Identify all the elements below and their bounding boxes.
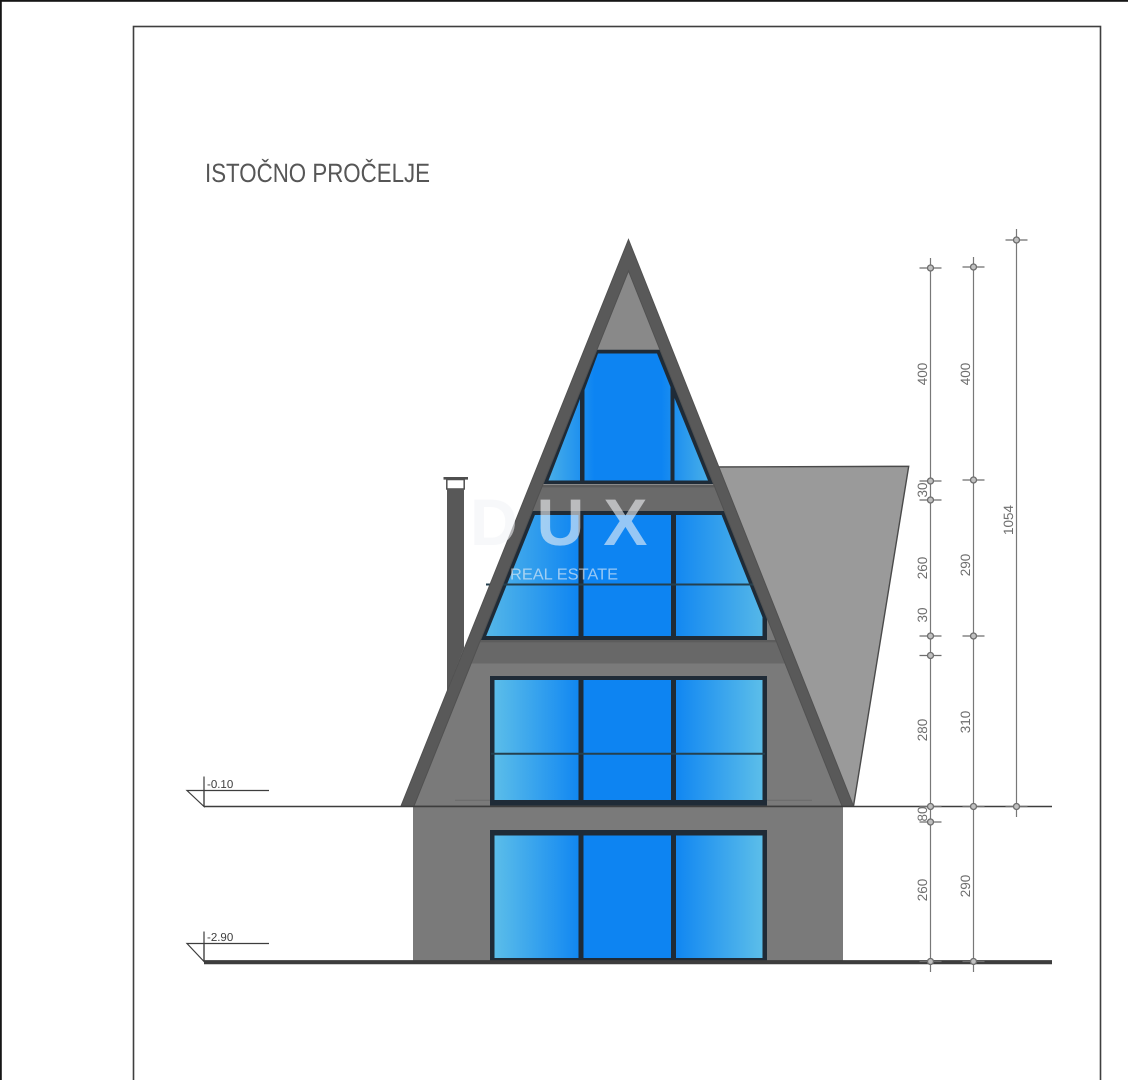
svg-text:80: 80 bbox=[915, 806, 930, 821]
svg-text:400: 400 bbox=[958, 363, 973, 386]
svg-text:-2.90: -2.90 bbox=[207, 932, 233, 944]
svg-text:1054: 1054 bbox=[1001, 504, 1016, 535]
svg-text:ISTOČNO PROČELJE: ISTOČNO PROČELJE bbox=[205, 158, 430, 188]
svg-text:290: 290 bbox=[958, 875, 973, 898]
svg-text:-0.10: -0.10 bbox=[207, 779, 233, 791]
svg-text:290: 290 bbox=[958, 554, 973, 577]
svg-text:30: 30 bbox=[915, 482, 930, 497]
svg-text:260: 260 bbox=[915, 879, 930, 902]
svg-text:310: 310 bbox=[958, 711, 973, 734]
svg-text:30: 30 bbox=[915, 607, 930, 622]
svg-text:DUX: DUX bbox=[470, 485, 666, 559]
svg-text:400: 400 bbox=[915, 363, 930, 386]
svg-text:280: 280 bbox=[915, 719, 930, 742]
svg-text:260: 260 bbox=[915, 557, 930, 580]
svg-text:REAL ESTATE: REAL ESTATE bbox=[510, 567, 618, 584]
